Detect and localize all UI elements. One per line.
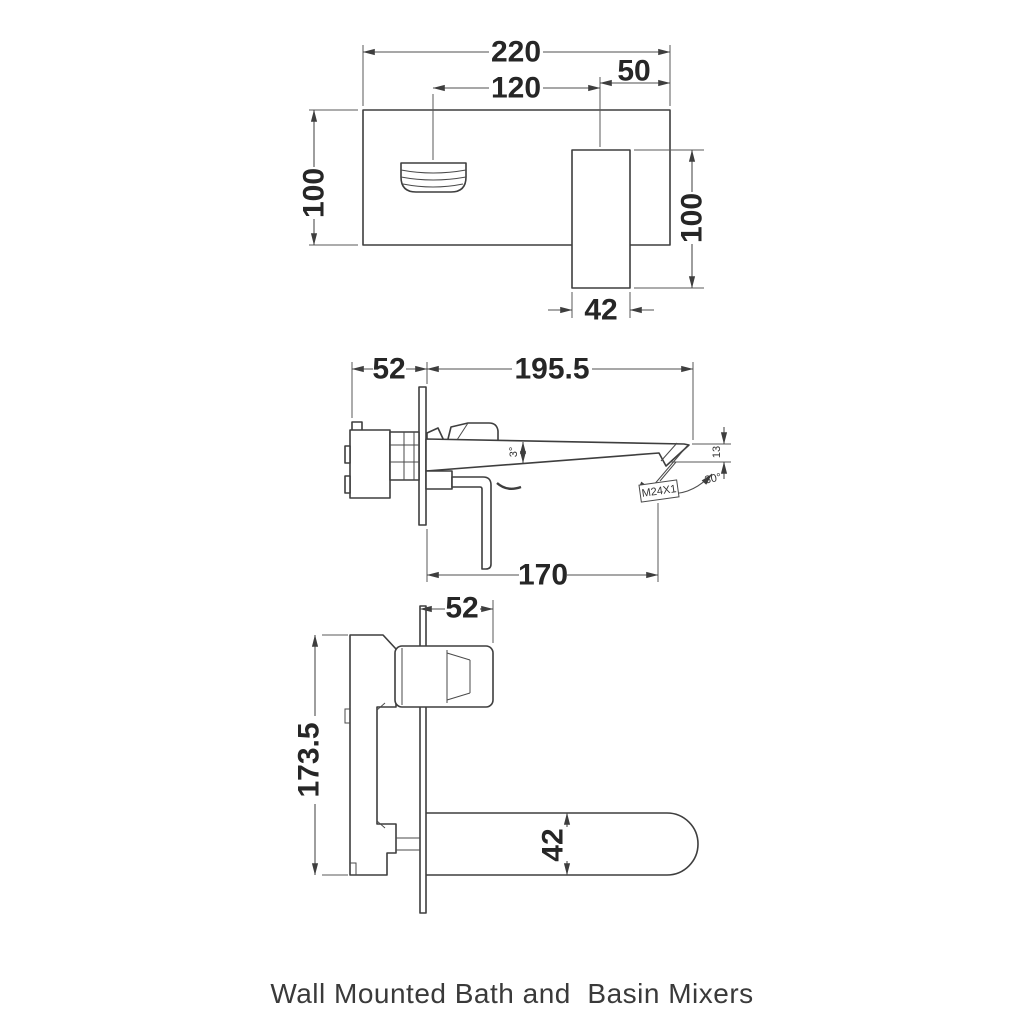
lever-handle-side [426, 471, 521, 569]
concealed-valve-body [345, 422, 419, 498]
dim-bath-spout-depth: 42 [537, 828, 570, 861]
basin-side-view: 52 195.5 170 3° 13 30° M24X1 [345, 353, 731, 592]
spout-front [572, 150, 630, 288]
wall-plate-side [419, 387, 426, 525]
dim-spout-length: 100 [676, 193, 709, 243]
dim-handle-center: 120 [491, 72, 541, 105]
dim-basin-depth: 52 [372, 353, 405, 386]
front-view: 220 120 50 100 100 42 [298, 36, 709, 327]
handle-front [401, 163, 466, 192]
dim-plate-width: 220 [491, 36, 541, 69]
dim-tip-depth: 13 [711, 446, 723, 458]
dim-plate-height: 100 [298, 168, 331, 218]
dim-spout-width: 42 [584, 294, 617, 327]
bath-handle-side [395, 646, 493, 707]
dim-tip-angle: 30° [704, 471, 723, 486]
technical-drawing-page: 220 120 50 100 100 42 [0, 0, 1024, 1024]
dim-spout-reach: 195.5 [514, 353, 589, 386]
dim-spout-taper: 3° [508, 447, 520, 458]
dim-aerator-center: 170 [518, 559, 568, 592]
dim-bath-depth: 52 [445, 592, 478, 625]
bath-extension-lines [322, 600, 493, 875]
drawing-canvas: 220 120 50 100 100 42 [0, 0, 1024, 1024]
thread-callout: M24X1 [639, 480, 679, 502]
drawing-caption: Wall Mounted Bath and Basin Mixers [270, 978, 753, 1009]
spout-side [426, 439, 689, 471]
dim-body-height: 173.5 [293, 722, 326, 797]
dim-spout-center: 50 [617, 55, 650, 88]
bath-side-view: 52 173.5 42 [293, 592, 699, 914]
